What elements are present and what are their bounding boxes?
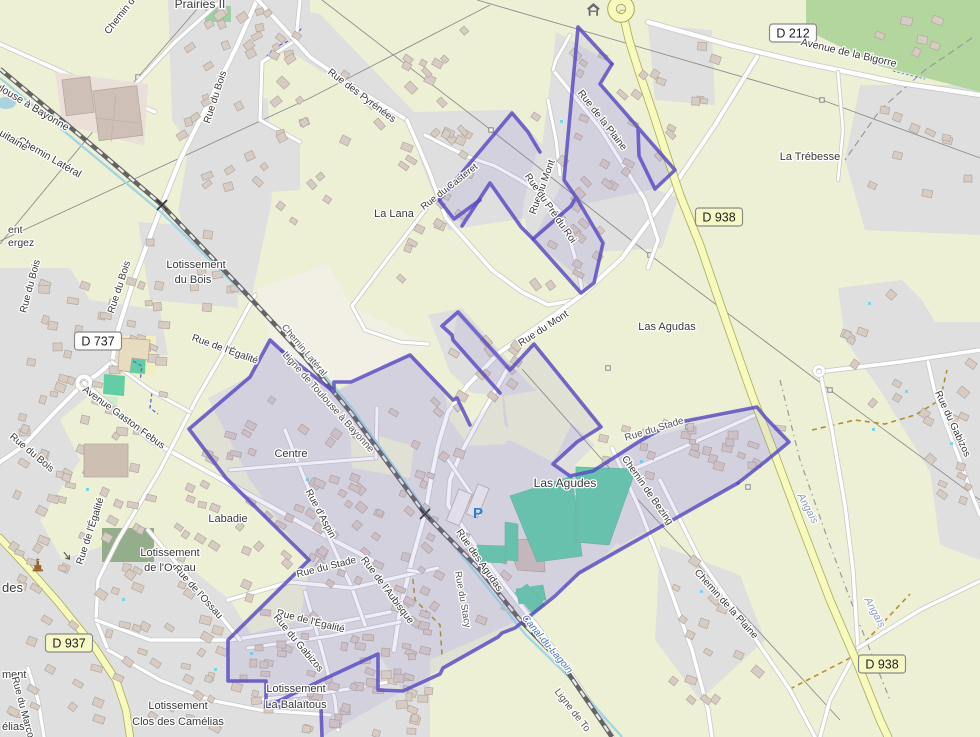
svg-text:Lotissement: Lotissement: [140, 547, 199, 559]
svg-text:D 938: D 938: [865, 658, 898, 672]
svg-text:La Lana: La Lana: [374, 208, 415, 220]
svg-text:ent: ent: [8, 224, 23, 236]
svg-text:La Trébesse: La Trébesse: [780, 151, 841, 163]
svg-text:Las Agudas: Las Agudas: [638, 321, 696, 333]
svg-text:D 737: D 737: [81, 335, 114, 349]
svg-text:Prairies II: Prairies II: [175, 0, 226, 11]
svg-text:D 938: D 938: [702, 211, 735, 225]
svg-text:des: des: [2, 580, 23, 595]
svg-text:Clos des Camélias: Clos des Camélias: [132, 716, 224, 728]
svg-text:Lotissement: Lotissement: [166, 259, 225, 271]
svg-text:Lotissement: Lotissement: [266, 683, 325, 695]
svg-text:Centre: Centre: [274, 448, 307, 460]
svg-text:P: P: [473, 505, 483, 522]
svg-text:du Bois: du Bois: [175, 274, 212, 286]
svg-text:ergez: ergez: [8, 237, 34, 249]
svg-text:Labadie: Labadie: [208, 513, 247, 525]
svg-text:Las Agudes: Las Agudes: [534, 476, 597, 490]
svg-text:La Balaïtous: La Balaïtous: [265, 699, 327, 711]
svg-text:D 937: D 937: [52, 637, 85, 651]
svg-text:Lotissement: Lotissement: [148, 700, 207, 712]
